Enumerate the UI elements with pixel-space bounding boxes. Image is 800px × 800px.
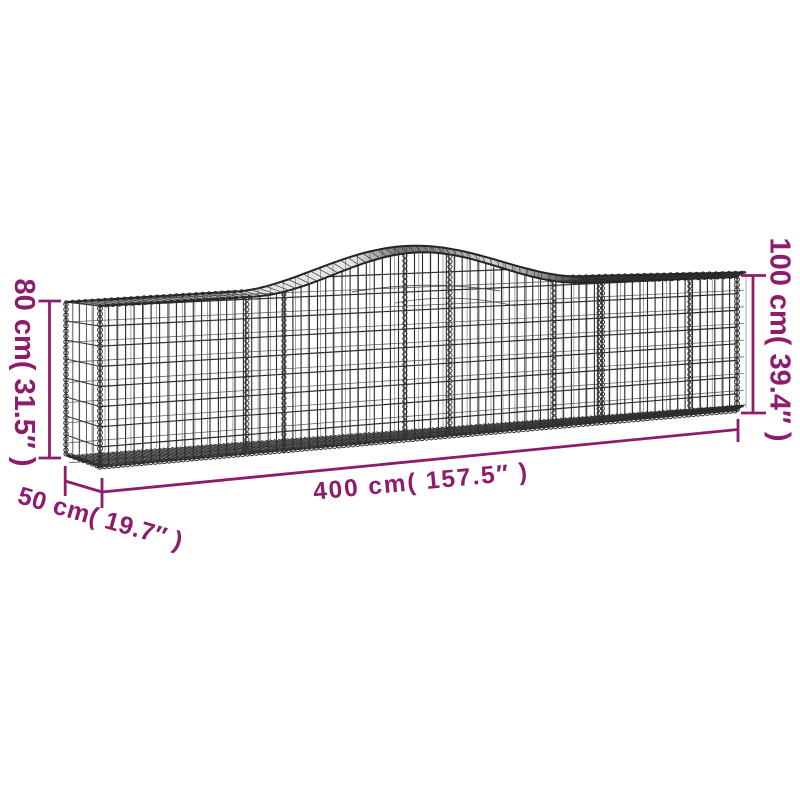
svg-text:80 cm( 31.5″ ): 80 cm( 31.5″ ) (8, 279, 40, 467)
svg-text:400 cm( 157.5″ ): 400 cm( 157.5″ ) (312, 458, 530, 505)
svg-text:100 cm( 39.4″ ): 100 cm( 39.4″ ) (764, 237, 796, 441)
